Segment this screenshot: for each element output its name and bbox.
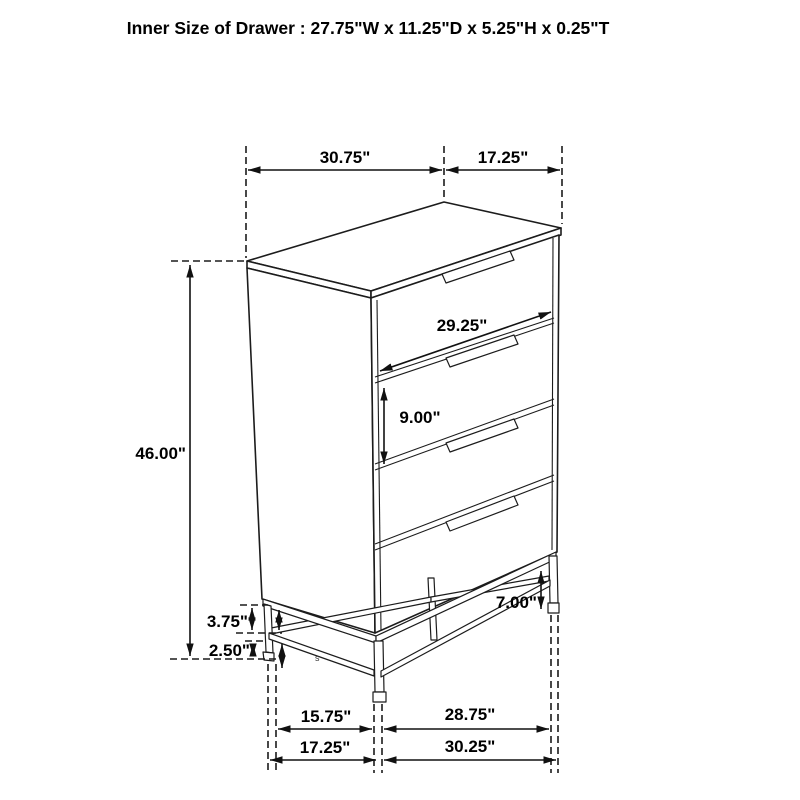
stretcher-part-mark: s xyxy=(315,653,320,663)
chest-front-face xyxy=(371,235,559,633)
dim-base-inner-width-label: 28.75" xyxy=(445,705,496,724)
base-right-foot xyxy=(548,603,559,613)
chest-side-panel xyxy=(247,268,375,633)
dim-base-clearance-label: 2.50" xyxy=(209,641,250,660)
dim-base-outer-depth: 17.25" xyxy=(270,738,376,760)
dim-base-inner-width: 28.75" xyxy=(384,705,549,729)
dim-base-outer-width: 30.25" xyxy=(384,737,556,760)
base-back-left-leg xyxy=(264,604,273,653)
dim-top-width-label: 30.75" xyxy=(320,148,371,167)
base-left-stretcher xyxy=(269,633,374,676)
chest-drawing: s xyxy=(247,202,561,702)
base-front-leg xyxy=(374,641,384,692)
dim-base-outer-width-label: 30.25" xyxy=(445,737,496,756)
dim-overall-height-label: 46.00" xyxy=(135,444,186,463)
dim-top-depth-label: 17.25" xyxy=(478,148,529,167)
dim-leg-height-label: 7.00" xyxy=(496,593,537,612)
dim-top-depth: 17.25" xyxy=(446,148,560,170)
dim-base-outer-depth-label: 17.25" xyxy=(300,738,351,757)
dim-drawer-width-label: 29.25" xyxy=(437,316,488,335)
diagram-title: Inner Size of Drawer : 27.75"W x 11.25"D… xyxy=(127,18,610,38)
furniture-dimension-diagram: s 30.75" 17.25" 46.00" 29.25" xyxy=(0,0,800,800)
base-right-leg xyxy=(549,556,558,603)
dim-drawer-height-label: 9.00" xyxy=(399,408,440,427)
dim-base-inner-depth: 15.75" xyxy=(278,707,372,729)
diagram-canvas: s 30.75" 17.25" 46.00" 29.25" xyxy=(0,0,800,800)
base-front-foot xyxy=(373,692,386,702)
dim-base-inner-depth-label: 15.75" xyxy=(301,707,352,726)
dim-top-width: 30.75" xyxy=(248,148,442,170)
dim-base-rail-gap-label: 3.75" xyxy=(207,612,248,631)
